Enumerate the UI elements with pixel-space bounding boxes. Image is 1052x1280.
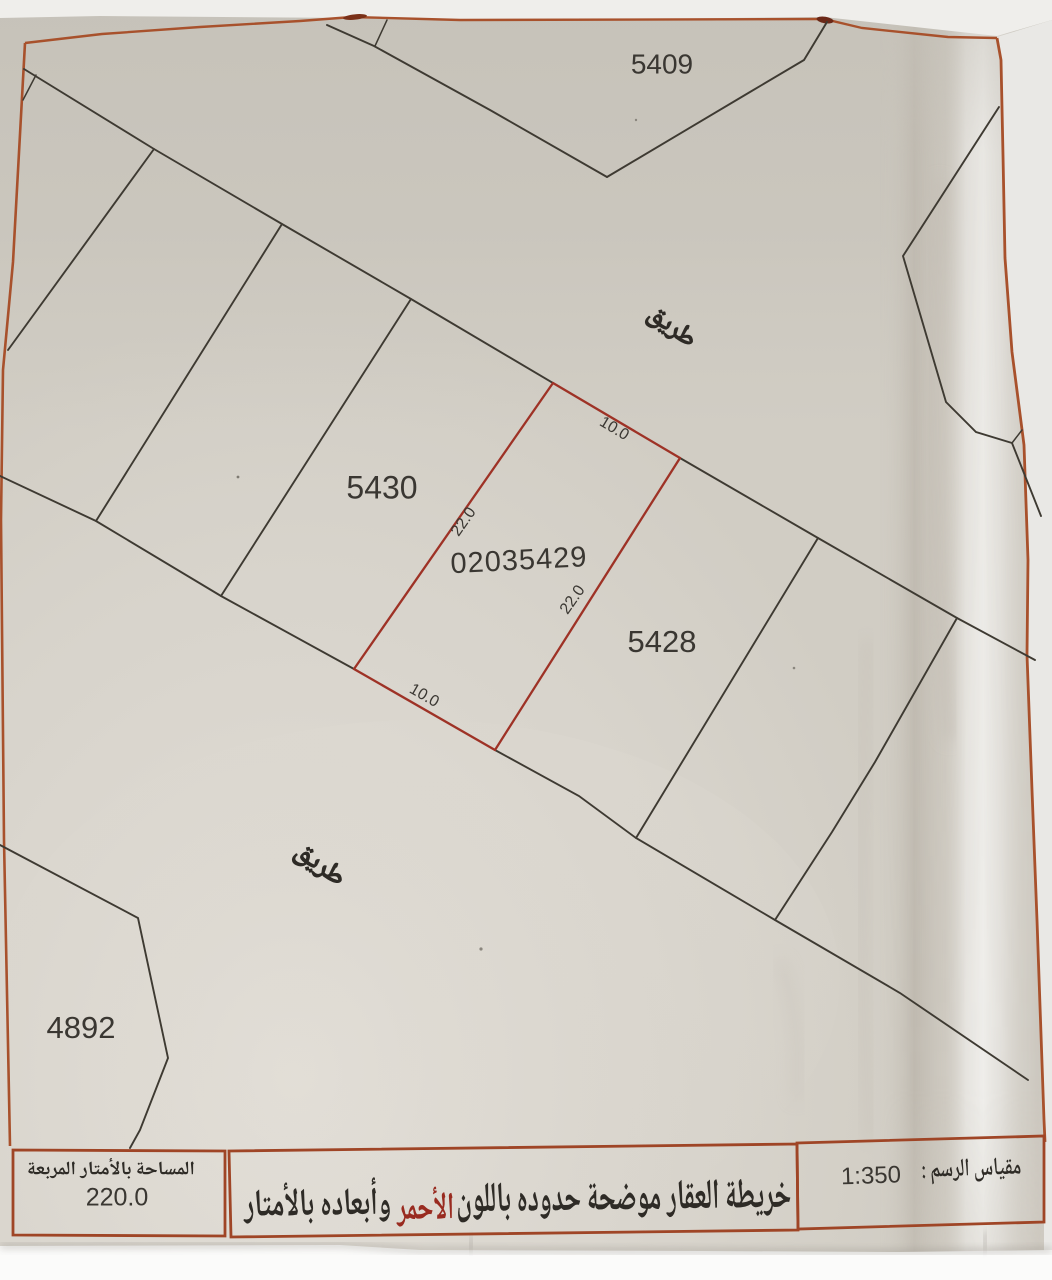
svg-text:5409: 5409 <box>631 48 693 79</box>
svg-text:5428: 5428 <box>628 624 697 659</box>
svg-text:5430: 5430 <box>346 469 417 505</box>
svg-text:4892: 4892 <box>47 1010 116 1045</box>
svg-text:1:350: 1:350 <box>840 1161 901 1190</box>
svg-text:220.0: 220.0 <box>86 1184 149 1212</box>
